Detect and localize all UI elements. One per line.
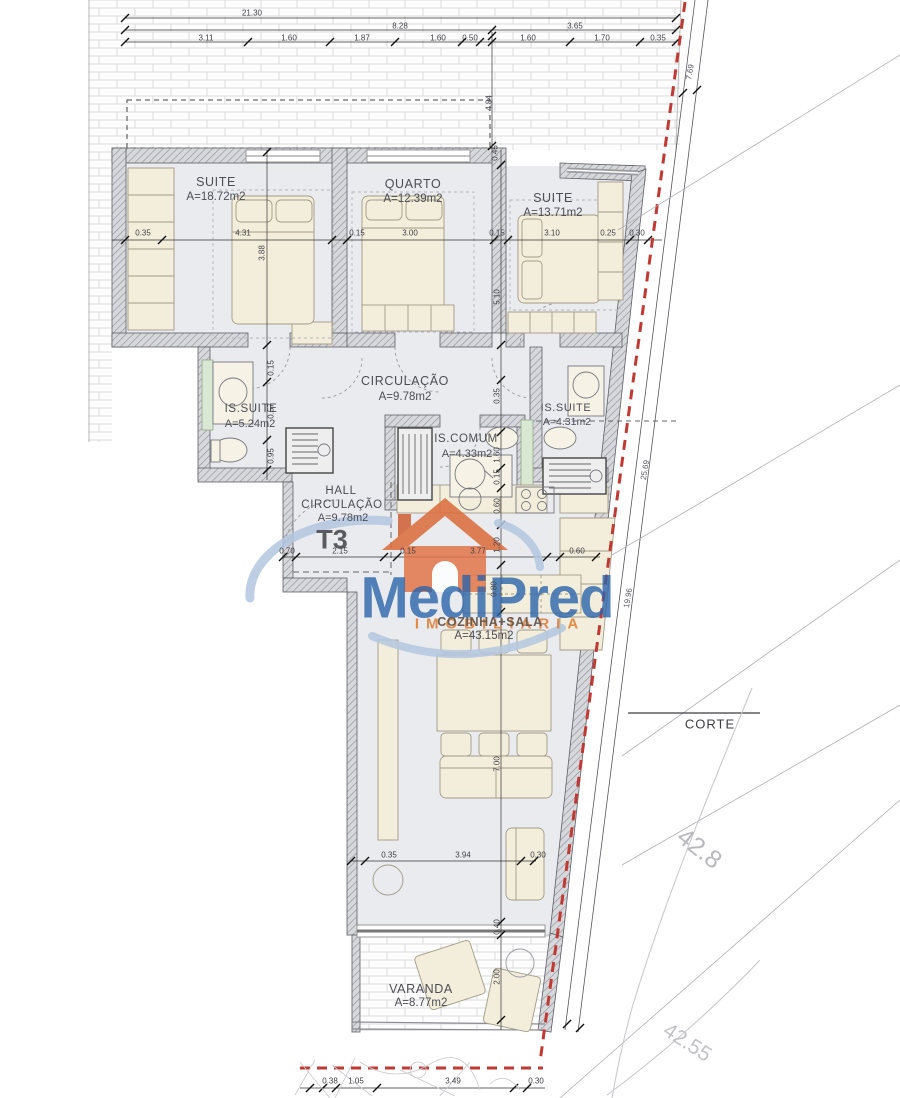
dim: 4.31 — [235, 229, 251, 238]
dim: 3.00 — [402, 229, 418, 238]
dim: 1.60 — [493, 447, 502, 463]
room-label-hall: HALL — [325, 485, 356, 497]
room-label-suite2: SUITE — [533, 191, 573, 205]
dim: 3.77 — [470, 547, 486, 556]
dim: 0.15 — [489, 229, 505, 238]
dim: 1.05 — [348, 1077, 364, 1086]
room-area-suite1: A=18.72m2 — [186, 191, 245, 203]
room-label-varanda: VARANDA — [389, 982, 453, 996]
room-area-varanda: A=8.77m2 — [395, 997, 448, 1009]
dim: 1.60 — [520, 34, 536, 43]
dim: 0.60 — [569, 547, 585, 556]
dim: 0.15 — [267, 360, 276, 376]
dim: 7.00 — [493, 756, 502, 772]
room-label-hall-2: CIRCULAÇÃO — [301, 499, 382, 511]
dim: 1.60 — [281, 34, 297, 43]
plan-drawing — [0, 0, 900, 1098]
dim: 0.40 — [493, 919, 502, 935]
room-area-circulacao: A=9.78m2 — [379, 391, 432, 403]
dim: 0.30 — [528, 1077, 544, 1086]
dim-top-a: 8.28 — [392, 22, 408, 31]
dim: 3.11 — [199, 34, 214, 43]
room-area-is-comum: A=4.33m2 — [442, 448, 492, 460]
dim: 1.87 — [354, 34, 370, 43]
dim: 0.57 — [267, 403, 276, 419]
dim-top-total: 21.30 — [242, 9, 262, 18]
room-area-suite2: A=13.71m2 — [523, 207, 582, 219]
room-area-is-suite2: A=4.31m2 — [543, 416, 591, 428]
dim: 0.35 — [381, 851, 397, 860]
dim: 1.60 — [430, 34, 446, 43]
dim-top-b: 3.65 — [567, 22, 583, 31]
dim: 0.15 — [349, 229, 365, 238]
room-label-quarto: QUARTO — [385, 177, 442, 191]
dim: 2.00 — [493, 969, 502, 985]
room-label-suite1: SUITE — [196, 175, 236, 189]
dim: 0.70 — [279, 547, 295, 556]
dim: 0.50 — [462, 34, 478, 43]
dim: 3.49 — [445, 1077, 461, 1086]
room-label-circulacao: CIRCULAÇÃO — [361, 374, 449, 388]
dim: 3.10 — [544, 229, 560, 238]
dim: 3.94 — [455, 851, 471, 860]
dim: 1.70 — [594, 34, 610, 43]
dim: 0.35 — [135, 229, 151, 238]
dim: 3.88 — [258, 245, 267, 261]
floor-plan-page: MediPred IMOBILIARIA SUITE A=18.72m2 QUA… — [0, 0, 900, 1098]
dim: 0.60 — [493, 498, 502, 514]
dim: 4.84 — [485, 95, 494, 111]
room-area-is-suite1: A=5.24m2 — [225, 418, 275, 430]
dim: 0.30 — [530, 851, 546, 860]
dim: 0.30 — [629, 229, 645, 238]
room-label-is-comum: IS.COMUM — [434, 433, 498, 445]
dim: 0.38 — [322, 1077, 338, 1086]
room-label-cozinha: COZINHA+SALA — [437, 615, 542, 629]
dim: 0.45 — [491, 145, 500, 161]
dim: 5.10 — [493, 289, 502, 305]
dim: 0.95 — [267, 448, 276, 464]
room-area-cozinha: A=43.15m2 — [454, 630, 513, 642]
dim: 2.15 — [332, 547, 348, 556]
room-label-is-suite2: IS.SUITE — [541, 402, 592, 414]
dim: 0.80 — [490, 581, 499, 597]
dim: 0.15 — [493, 469, 502, 485]
dim: 0.35 — [493, 388, 502, 404]
room-area-quarto: A=12.39m2 — [383, 193, 442, 205]
dim: 0.15 — [400, 547, 416, 556]
section-label: CORTE — [685, 717, 735, 732]
dim: 0.25 — [600, 229, 616, 238]
dim: 0.35 — [650, 34, 666, 43]
room-area-hall: A=9.78m2 — [318, 512, 368, 524]
dim: 1.20 — [493, 537, 502, 553]
